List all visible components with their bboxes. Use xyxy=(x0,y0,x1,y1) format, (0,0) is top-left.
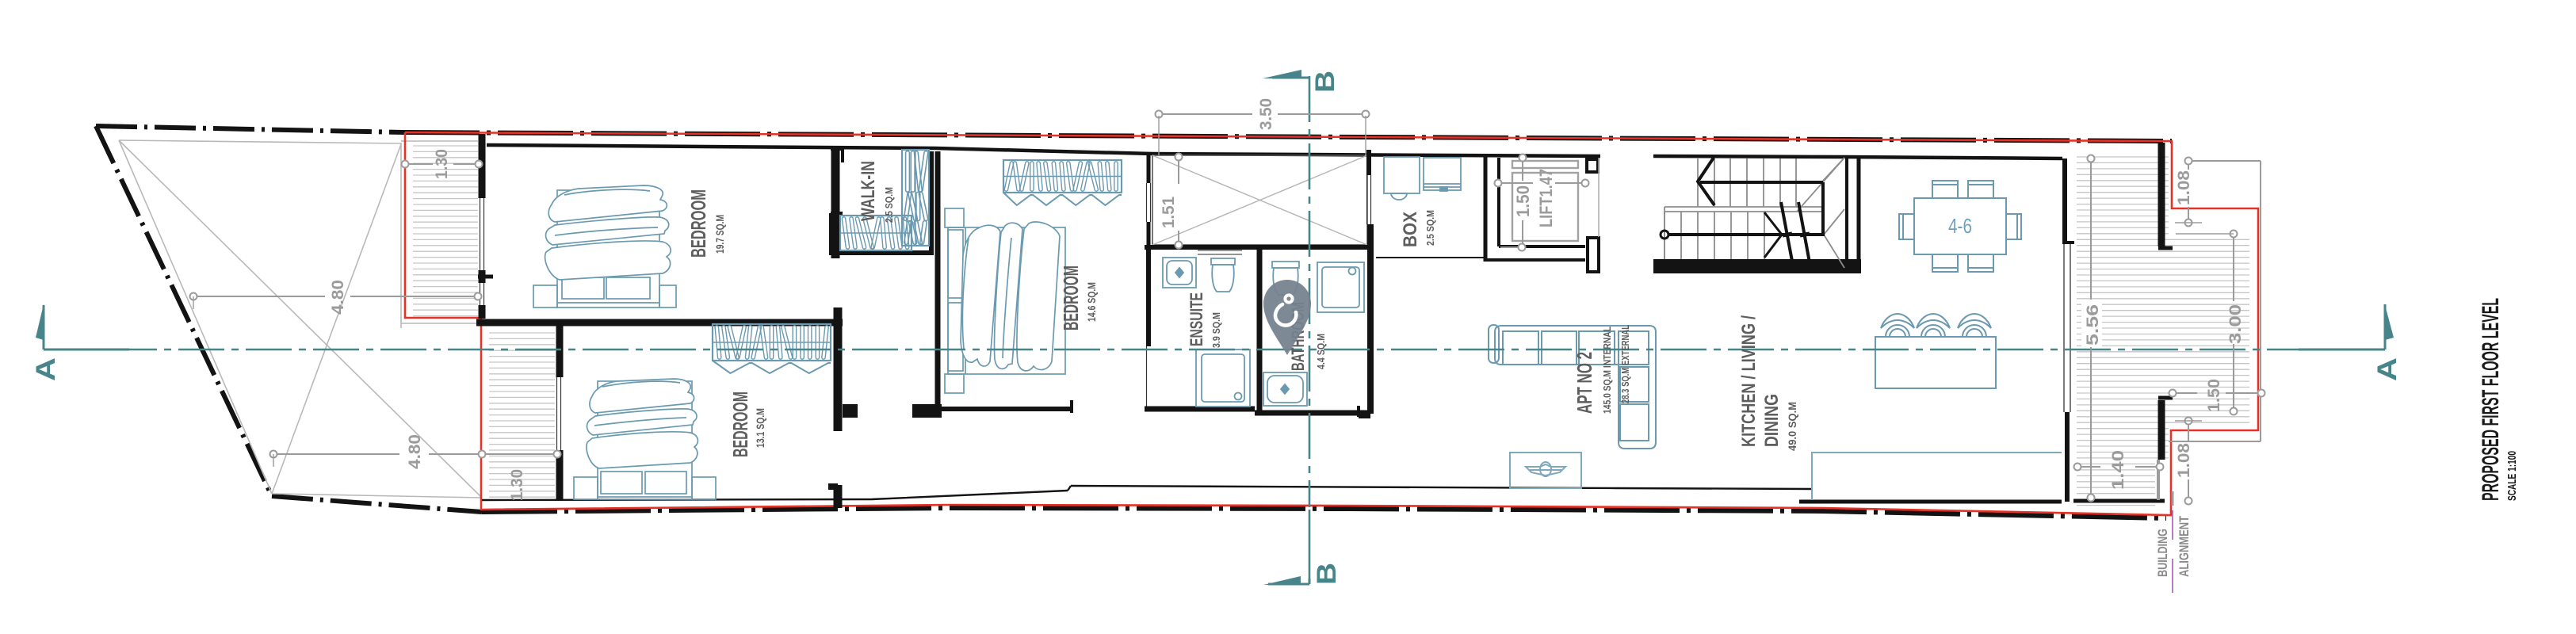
svg-text:1.30: 1.30 xyxy=(508,469,526,501)
svg-text:14.6 SQ.M: 14.6 SQ.M xyxy=(1085,282,1098,322)
svg-text:1.51: 1.51 xyxy=(1160,197,1178,228)
svg-text:A: A xyxy=(2372,357,2402,381)
svg-text:A: A xyxy=(31,357,61,381)
svg-text:1.50: 1.50 xyxy=(2205,379,2223,412)
svg-text:1.30: 1.30 xyxy=(433,149,451,179)
svg-text:BUILDING: BUILDING xyxy=(2155,529,2170,577)
svg-text:19.7 SQ.M: 19.7 SQ.M xyxy=(713,215,726,254)
svg-text:1.08: 1.08 xyxy=(2175,443,2193,478)
svg-text:13.1 SQ.M: 13.1 SQ.M xyxy=(754,408,766,448)
svg-text:4.80: 4.80 xyxy=(406,434,424,469)
svg-text:BEDROOM: BEDROOM xyxy=(728,391,752,457)
svg-text:1.08: 1.08 xyxy=(2175,170,2193,205)
svg-text:2.5 SQ.M: 2.5 SQ.M xyxy=(883,187,895,223)
svg-text:KITCHEN / LIVING /: KITCHEN / LIVING / xyxy=(1738,315,1760,447)
svg-text:DINING: DINING xyxy=(1761,394,1783,447)
svg-text:3.00: 3.00 xyxy=(2226,304,2245,344)
svg-text:3.9 SQ.M: 3.9 SQ.M xyxy=(1210,312,1222,348)
svg-text:4.4 SQ.M: 4.4 SQ.M xyxy=(1315,334,1327,369)
svg-text:B: B xyxy=(1310,71,1340,93)
svg-text:ENSUITE: ENSUITE xyxy=(1187,292,1206,346)
svg-text:LIFT1.47: LIFT1.47 xyxy=(1536,169,1556,227)
svg-text:1.40: 1.40 xyxy=(2109,450,2127,490)
svg-text:1.50: 1.50 xyxy=(1513,185,1533,217)
svg-text:BOX: BOX xyxy=(1400,212,1421,247)
svg-text:4.80: 4.80 xyxy=(329,280,347,315)
svg-text:BEDROOM: BEDROOM xyxy=(1059,265,1083,330)
svg-text:PROPOSED FIRST FLOOR LEVEL: PROPOSED FIRST FLOOR LEVEL xyxy=(2478,298,2504,501)
svg-text:5.56: 5.56 xyxy=(2084,304,2102,346)
svg-text:2.5 SQ.M: 2.5 SQ.M xyxy=(1424,210,1436,246)
svg-text:SCALE 1:100: SCALE 1:100 xyxy=(2505,451,2519,501)
svg-text:BEDROOM: BEDROOM xyxy=(686,189,710,258)
svg-text:49.0 SQ.M: 49.0 SQ.M xyxy=(1786,402,1798,451)
svg-text:28.3 SQ.M EXTERNAL: 28.3 SQ.M EXTERNAL xyxy=(1619,325,1631,403)
svg-text:B: B xyxy=(1312,563,1342,585)
svg-text:APT NO 2: APT NO 2 xyxy=(1573,352,1596,414)
svg-text:ALIGNMENT: ALIGNMENT xyxy=(2177,516,2192,577)
svg-text:145.0 SQ.M INTERNAL: 145.0 SQ.M INTERNAL xyxy=(1601,327,1613,414)
svg-text:3.50: 3.50 xyxy=(1257,98,1275,130)
svg-text:4-6: 4-6 xyxy=(1948,214,1972,238)
svg-text:WALK-IN: WALK-IN xyxy=(858,161,879,221)
